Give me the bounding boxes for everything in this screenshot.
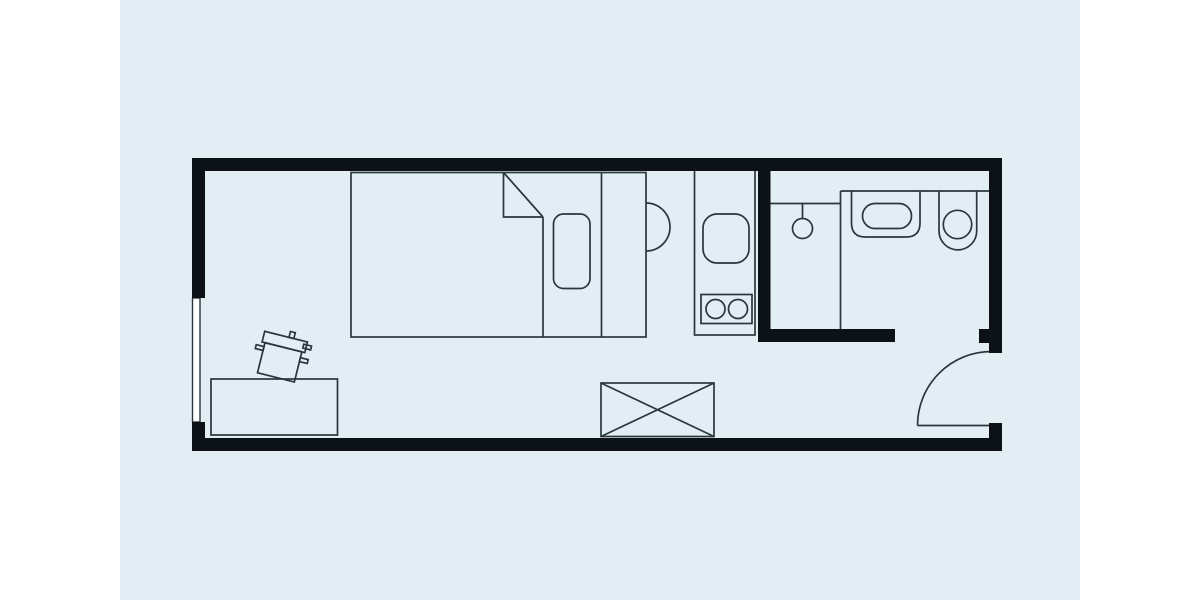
floor-plan-svg — [0, 0, 1200, 600]
window — [193, 298, 201, 422]
wall-entry-jamb — [979, 329, 993, 343]
plan-panel — [120, 0, 1080, 600]
wall-left-upper — [192, 158, 205, 298]
wall-top — [192, 158, 1002, 171]
wall-bathroom-bottom — [758, 329, 895, 342]
wall-right-lower — [989, 423, 1002, 451]
floor-plan-page — [0, 0, 1200, 600]
wall-right-upper — [989, 158, 1002, 353]
wall-bottom — [192, 438, 1002, 451]
wall-bathroom-partition — [758, 158, 771, 342]
